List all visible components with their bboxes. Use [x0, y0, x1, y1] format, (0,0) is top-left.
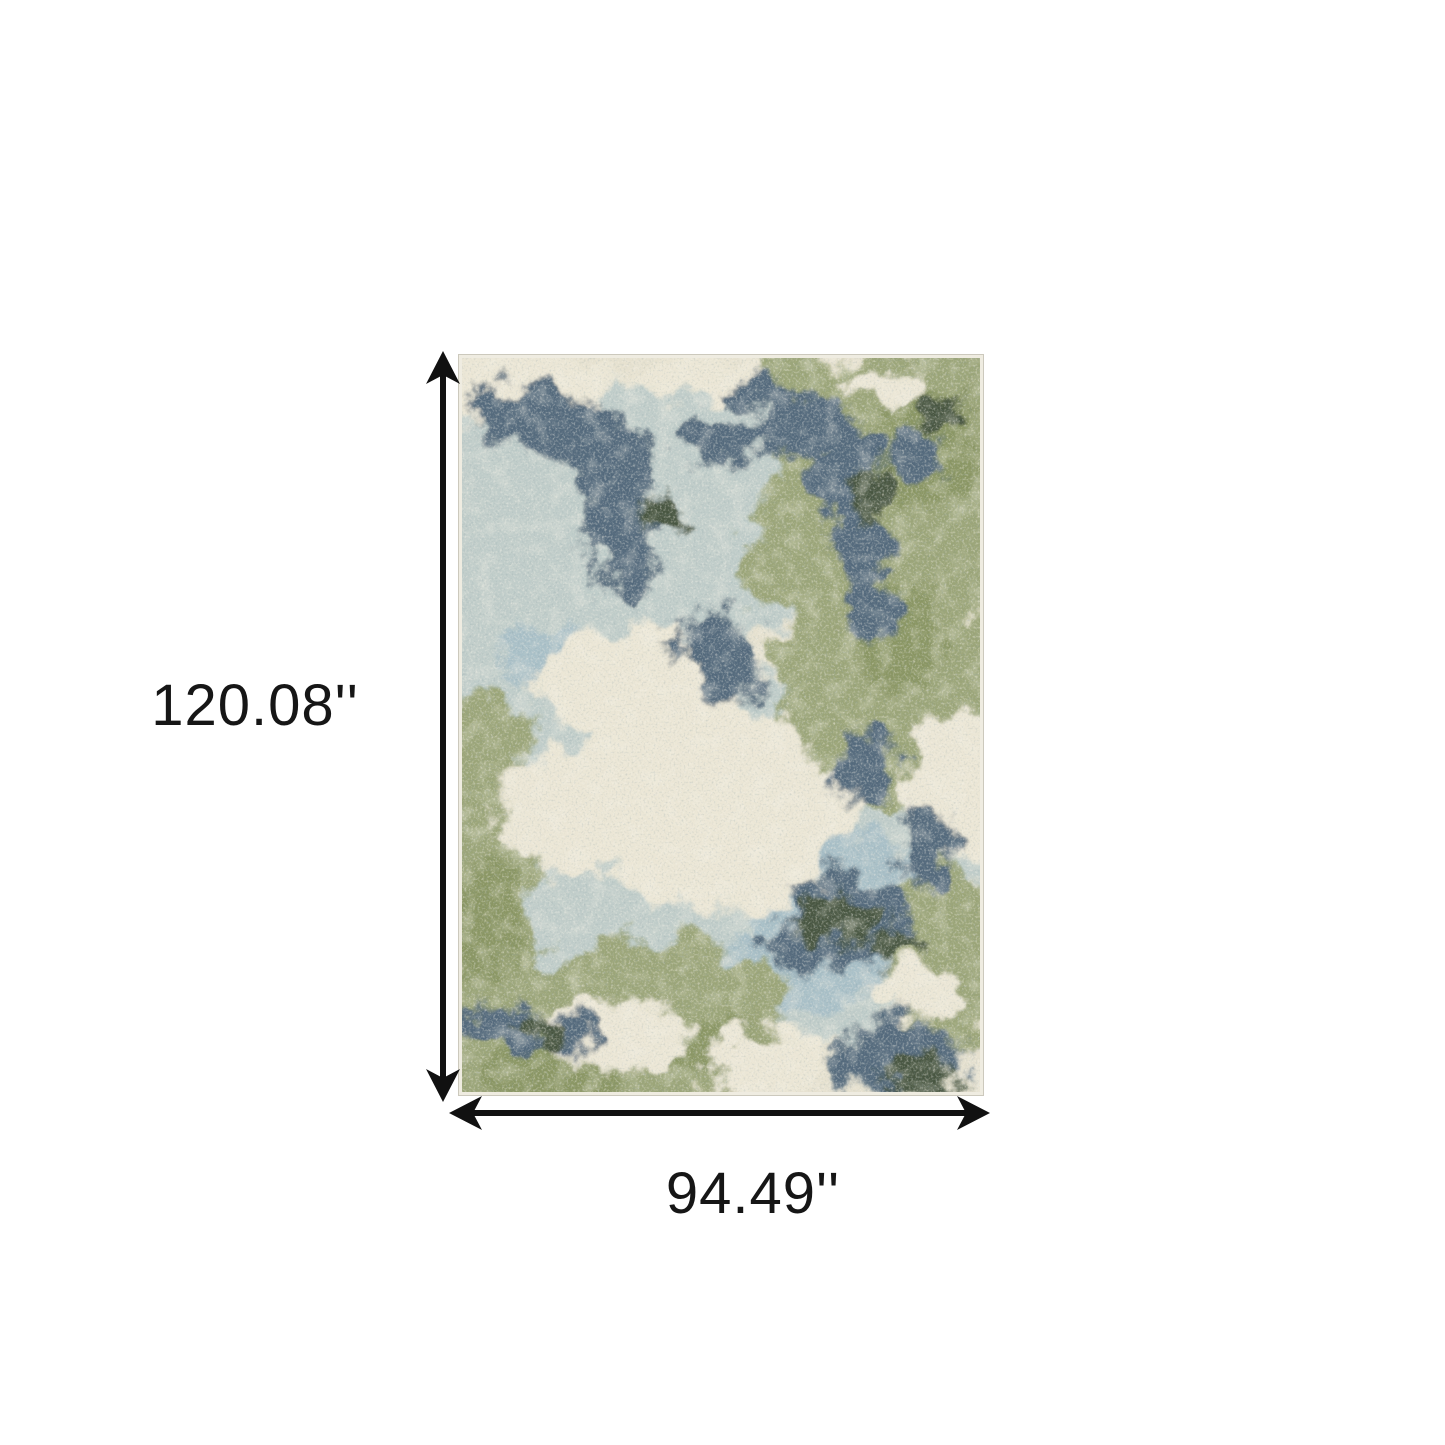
rug-fiber-texture: [458, 354, 984, 1096]
arrowhead-left-icon: [449, 1096, 482, 1130]
rug-pattern-svg: [458, 354, 984, 1096]
rug-image: [458, 354, 984, 1096]
arrowhead-up-icon: [426, 351, 460, 384]
height-dimension-label: 120.08'': [90, 674, 420, 738]
product-dimension-image: 120.08'' 94.49'': [0, 0, 1445, 1445]
width-dimension-label: 94.49'': [588, 1162, 918, 1226]
arrowhead-down-icon: [426, 1069, 460, 1102]
arrowhead-right-icon: [957, 1096, 990, 1130]
